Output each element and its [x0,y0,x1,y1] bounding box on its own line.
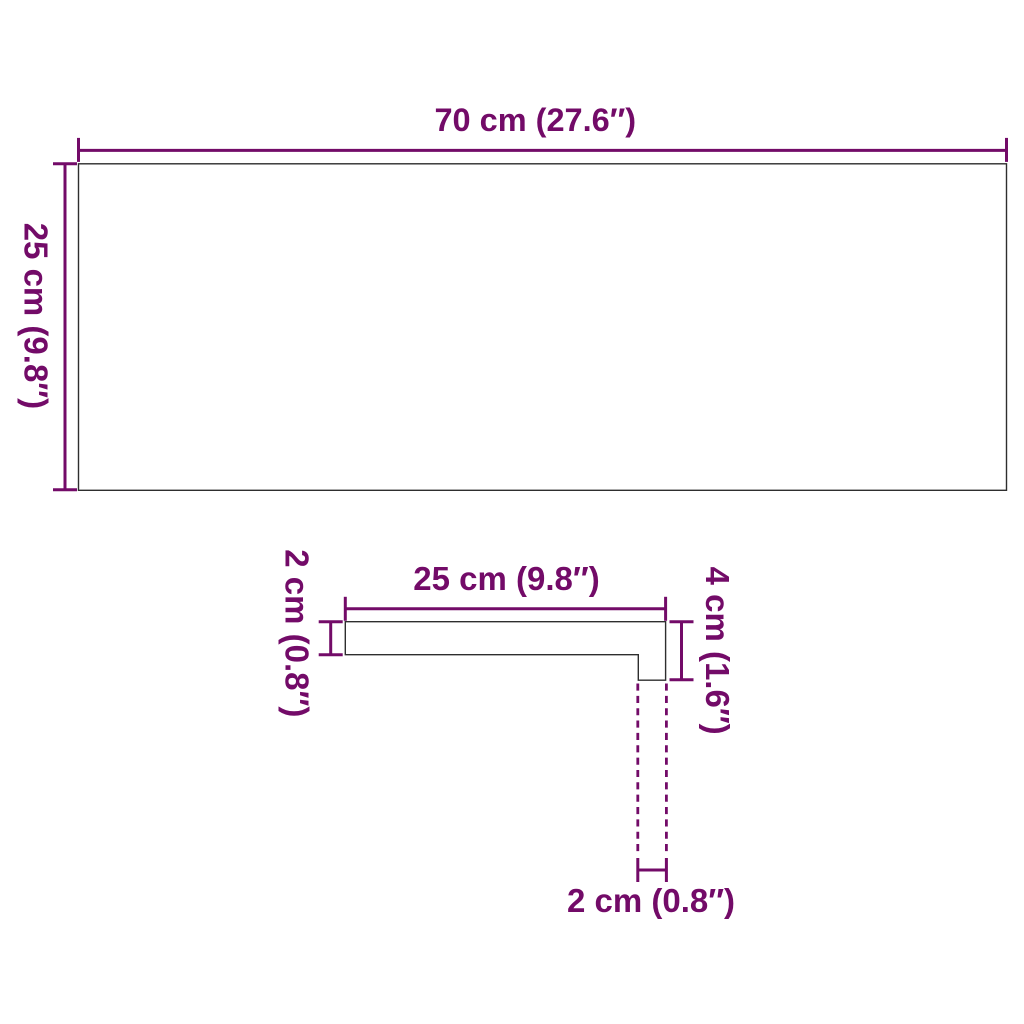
svg-text:2 cm (0.8″): 2 cm (0.8″) [279,549,316,717]
svg-text:25 cm (9.8″): 25 cm (9.8″) [17,223,54,409]
svg-text:70 cm (27.6″): 70 cm (27.6″) [434,102,636,138]
svg-text:2 cm (0.8″): 2 cm (0.8″) [567,882,735,919]
svg-text:4 cm (1.6″): 4 cm (1.6″) [699,567,736,735]
svg-text:25 cm (9.8″): 25 cm (9.8″) [413,560,599,597]
